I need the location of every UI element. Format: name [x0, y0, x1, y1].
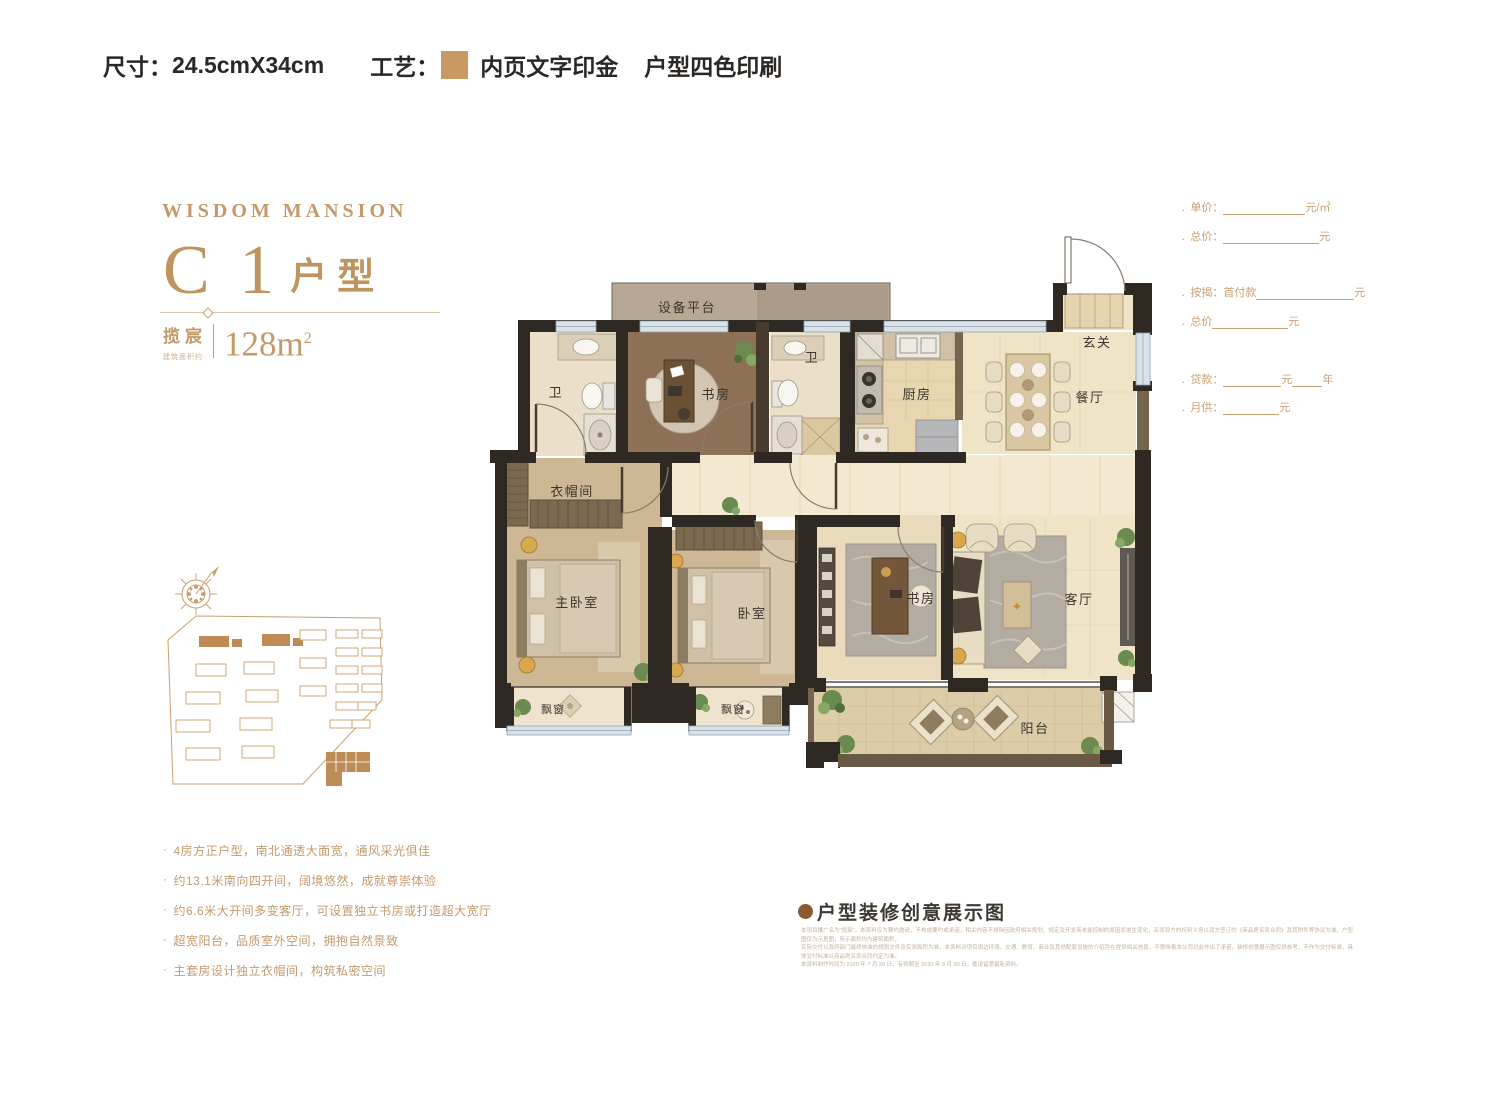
room-label-study1: 书房 [701, 387, 730, 402]
room-label-entry: 玄关 [1082, 335, 1111, 350]
room-label-equipment-platform: 设备平台 [658, 300, 716, 315]
room-label-study2: 书房 [906, 591, 935, 606]
room-label-bath2: 卫 [805, 350, 820, 365]
room-label-balcony: 阳台 [1020, 721, 1049, 736]
room-label-baywindow1: 飘窗 [541, 702, 565, 716]
room-label-bath1: 卫 [549, 385, 564, 400]
room-label-dining: 餐厅 [1075, 390, 1104, 405]
svg-text:✦: ✦ [1012, 599, 1023, 614]
entry-door-leaf [1065, 237, 1071, 283]
room-label-bedroom2: 卧室 [737, 606, 766, 621]
room-label-master: 主卧室 [555, 595, 599, 610]
entry-door-arc [1071, 239, 1125, 291]
room-label-baywindow2: 飘窗 [721, 702, 745, 716]
site-plan [168, 616, 382, 786]
brochure-page: 尺寸： 24.5cmX34cm 工艺： 内页文字印金 户型四色印刷 WISDOM… [0, 0, 1500, 1104]
room-label-closet: 衣帽间 [550, 484, 594, 499]
compass-rose-icon [175, 566, 219, 615]
room-label-living: 客厅 [1064, 592, 1093, 607]
floorplan-svg: ✦ [0, 0, 1500, 1104]
room-label-kitchen: 厨房 [902, 387, 931, 402]
